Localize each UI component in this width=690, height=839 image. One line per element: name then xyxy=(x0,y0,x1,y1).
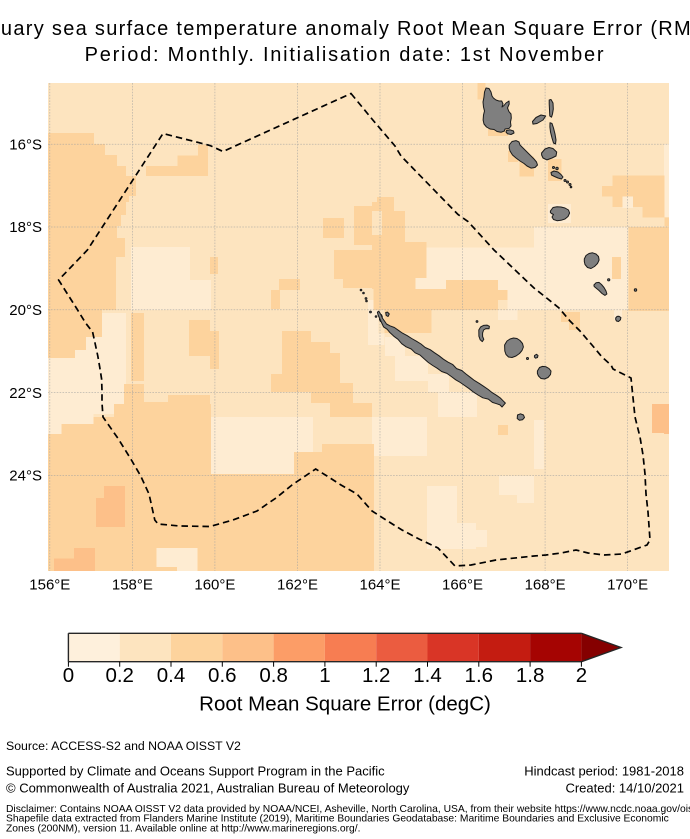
svg-text:1.4: 1.4 xyxy=(413,664,442,687)
svg-text:1.8: 1.8 xyxy=(516,664,545,687)
svg-text:20°S: 20°S xyxy=(9,302,42,319)
svg-text:Source: ACCESS-S2 and NOAA OIS: Source: ACCESS-S2 and NOAA OISST V2 xyxy=(6,739,241,753)
svg-text:168°E: 168°E xyxy=(525,577,566,594)
svg-text:18°S: 18°S xyxy=(9,219,42,236)
svg-text:0.4: 0.4 xyxy=(157,664,186,687)
svg-text:Hindcast period: 1981-2018: Hindcast period: 1981-2018 xyxy=(524,763,684,778)
svg-text:0.2: 0.2 xyxy=(105,664,134,687)
svg-text:0.8: 0.8 xyxy=(259,664,288,687)
svg-text:156°E: 156°E xyxy=(29,577,70,594)
svg-text:24°S: 24°S xyxy=(9,468,42,485)
svg-text:158°E: 158°E xyxy=(112,577,153,594)
svg-text:© Commonwealth of Australia 20: © Commonwealth of Australia 2021, Austra… xyxy=(6,780,410,795)
svg-text:Period: Monthly. Initialisatio: Period: Monthly. Initialisation date: 1s… xyxy=(85,44,606,66)
svg-text:2: 2 xyxy=(576,664,587,687)
svg-text:1.6: 1.6 xyxy=(465,664,494,687)
svg-text:Created: 14/10/2021: Created: 14/10/2021 xyxy=(565,780,684,795)
svg-text:170°E: 170°E xyxy=(607,577,648,594)
svg-text:160°E: 160°E xyxy=(194,577,235,594)
svg-text:16°S: 16°S xyxy=(9,137,42,154)
svg-text:162°E: 162°E xyxy=(277,577,318,594)
svg-text:166°E: 166°E xyxy=(442,577,483,594)
svg-text:1.2: 1.2 xyxy=(362,664,391,687)
svg-text:0: 0 xyxy=(63,664,74,687)
svg-text:164°E: 164°E xyxy=(359,577,400,594)
svg-text:January sea surface temperatur: January sea surface temperature anomaly … xyxy=(0,18,690,40)
svg-text:Supported by Climate and Ocean: Supported by Climate and Oceans Support … xyxy=(6,763,385,778)
svg-text:0.6: 0.6 xyxy=(208,664,237,687)
svg-text:1: 1 xyxy=(319,664,330,687)
svg-text:Root Mean Square Error (degC): Root Mean Square Error (degC) xyxy=(199,693,491,716)
svg-text:Zones (200NM), version 11. Ava: Zones (200NM), version 11. Available onl… xyxy=(6,824,360,835)
svg-text:22°S: 22°S xyxy=(9,385,42,402)
